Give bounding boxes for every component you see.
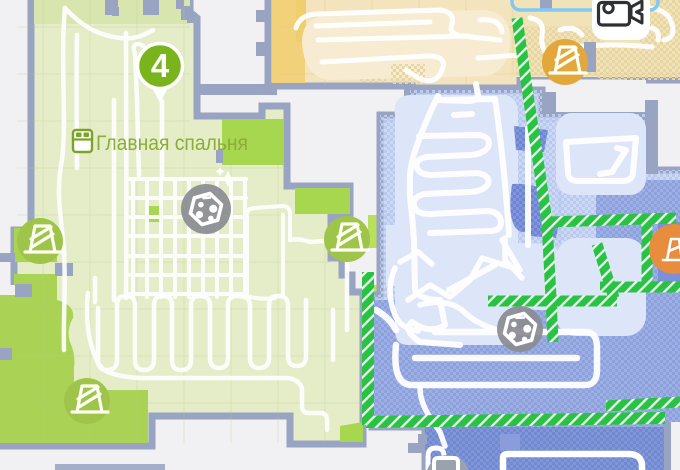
svg-text:4: 4 xyxy=(151,47,170,84)
svg-text:Главная спальня: Главная спальня xyxy=(96,132,248,155)
